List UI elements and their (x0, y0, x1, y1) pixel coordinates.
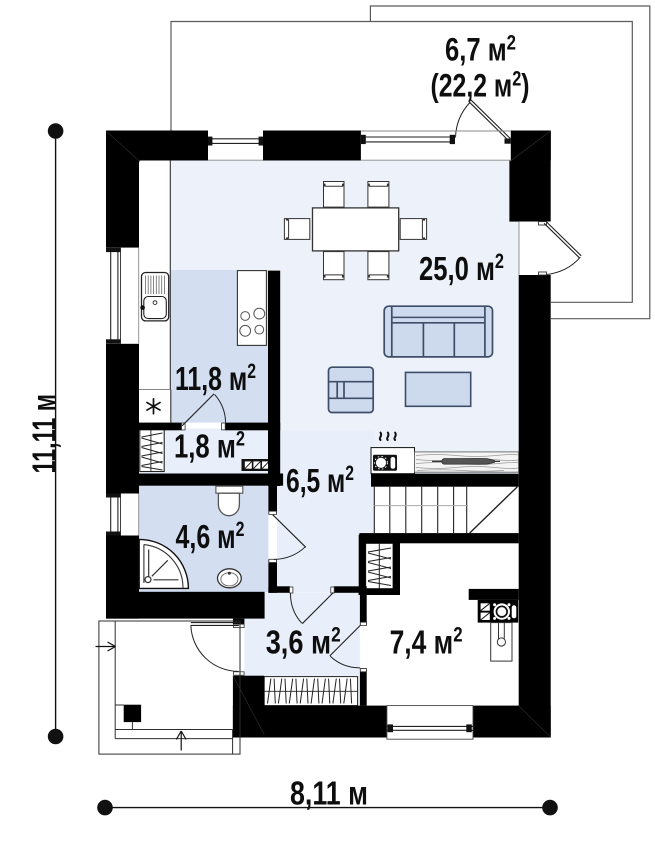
svg-text:25,0 м2: 25,0 м2 (419, 250, 504, 287)
svg-text:1,8 м2: 1,8 м2 (174, 428, 245, 465)
svg-text:6,7 м2: 6,7 м2 (445, 31, 516, 67)
svg-text:4,6 м2: 4,6 м2 (176, 518, 245, 555)
svg-text:3,6 м2: 3,6 м2 (266, 624, 341, 661)
svg-text:11,8 м2: 11,8 м2 (175, 360, 256, 397)
svg-text:7,4 м2: 7,4 м2 (390, 624, 463, 661)
svg-text:8,11 м: 8,11 м (290, 775, 368, 812)
svg-text:11,11 м: 11,11 м (26, 394, 63, 474)
svg-text:6,5 м2: 6,5 м2 (286, 462, 354, 499)
